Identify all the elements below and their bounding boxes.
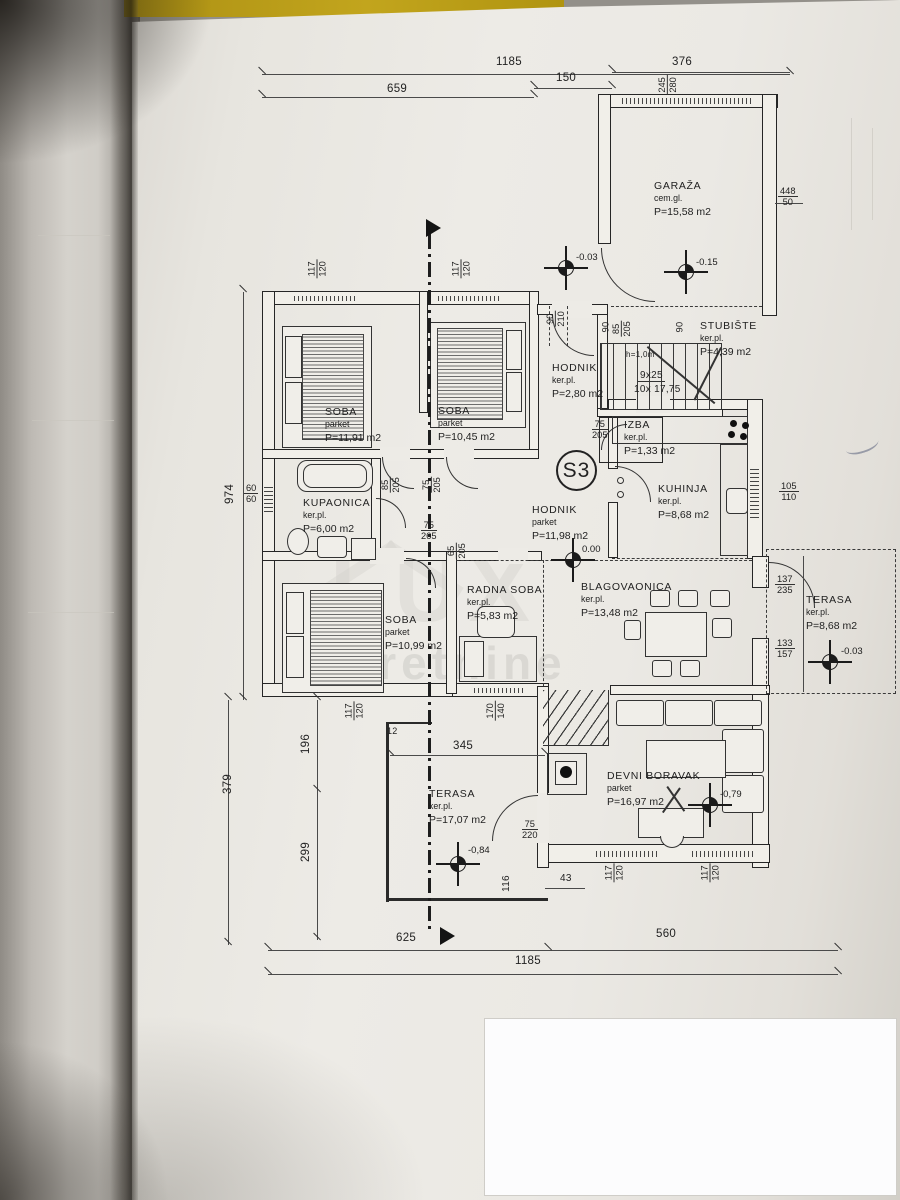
dim-door: 75220 bbox=[522, 819, 538, 841]
open-plan-divider bbox=[456, 560, 752, 561]
kitchen-sink-icon bbox=[726, 488, 748, 514]
dim-299: 299 bbox=[300, 842, 312, 862]
dim-line bbox=[317, 700, 318, 940]
dim-bath-window: 6060 bbox=[244, 483, 258, 505]
dim-door: 85205 bbox=[380, 477, 402, 493]
fixture-dot bbox=[617, 477, 624, 484]
room-label-stubiste: STUBIŠTEker.pl.P=4,39 m2 bbox=[700, 320, 757, 359]
room-label-kuhinja: KUHINJAker.pl.P=8,68 m2 bbox=[658, 483, 709, 522]
sofa-cushion bbox=[722, 729, 764, 773]
dim-line bbox=[262, 97, 534, 98]
dim-560: 560 bbox=[656, 928, 676, 940]
dim-1185-top: 1185 bbox=[496, 56, 522, 68]
dim-12: 12 bbox=[387, 726, 398, 736]
wall bbox=[446, 551, 457, 694]
page-shadow bbox=[132, 990, 462, 1200]
dim-line bbox=[268, 950, 838, 951]
dim-window: 117120 bbox=[451, 259, 473, 278]
pillow-icon bbox=[286, 636, 304, 678]
elevation-value: -0,84 bbox=[468, 845, 490, 856]
sofa-cushion bbox=[616, 700, 664, 726]
wall bbox=[608, 502, 618, 558]
elevation-value: 0.00 bbox=[582, 544, 601, 555]
dim-window: 117120 bbox=[700, 863, 722, 882]
chair-icon bbox=[680, 660, 700, 677]
room-label-terasa-right: TERASAker.pl.P=8,68 m2 bbox=[806, 594, 857, 633]
dim-345: 345 bbox=[453, 740, 473, 752]
dim-150: 150 bbox=[556, 72, 576, 84]
desk-drawer bbox=[464, 641, 484, 677]
window-hatch bbox=[474, 688, 524, 693]
open-plan-divider bbox=[543, 560, 544, 686]
dim-625: 625 bbox=[396, 932, 416, 944]
room-label-hodnik-1: HODNIKker.pl.P=2,80 m2 bbox=[552, 362, 603, 401]
blank-overlay-box bbox=[484, 1018, 897, 1196]
dim-line bbox=[390, 755, 545, 756]
garage-open-edge bbox=[611, 306, 762, 307]
elevation-value: -0.03 bbox=[841, 646, 863, 657]
room-label-hodnik-2: HODNIKparketP=11,98 m2 bbox=[532, 504, 588, 543]
section-bubble: S3 bbox=[556, 450, 597, 491]
dim-window: 117120 bbox=[307, 259, 329, 278]
dim-izba-door: 75205 bbox=[592, 419, 608, 441]
elevation-value: -0.15 bbox=[696, 257, 718, 268]
photo-corner-shadow bbox=[0, 0, 220, 170]
bleed-line bbox=[872, 128, 873, 220]
door-opening bbox=[498, 548, 528, 564]
window-hatch bbox=[264, 486, 273, 512]
dim-379: 379 bbox=[222, 774, 234, 794]
dim-line bbox=[534, 88, 612, 89]
dim-90: 90 bbox=[674, 322, 684, 333]
staircase-down-icon bbox=[543, 690, 609, 746]
bleed-line bbox=[851, 118, 852, 230]
stair-count-2: 10x 17,75 bbox=[634, 384, 681, 395]
sink-icon bbox=[317, 536, 347, 558]
chair-icon bbox=[678, 590, 698, 607]
sofa-cushion bbox=[714, 700, 762, 726]
room-label-radna-soba: RADNA SOBAker.pl.P=5,83 m2 bbox=[467, 584, 542, 623]
bleed-line bbox=[32, 420, 114, 421]
dim-line bbox=[262, 74, 790, 75]
chair-icon bbox=[710, 590, 730, 607]
dim-974: 974 bbox=[224, 484, 236, 504]
dim-659: 659 bbox=[387, 83, 407, 95]
bathtub-inner bbox=[303, 464, 367, 488]
floor-plan-photo: LUX nekretnine bbox=[0, 0, 900, 1200]
dim-door: 85205 bbox=[611, 321, 633, 337]
dim-376: 376 bbox=[672, 56, 692, 68]
dim-kitchen-window: 105110 bbox=[779, 481, 799, 503]
bleed-line bbox=[38, 235, 110, 236]
dim-terrace: 137235 bbox=[775, 574, 795, 596]
section-line bbox=[428, 234, 431, 930]
dim-line bbox=[545, 888, 585, 889]
hob-burner-icon bbox=[730, 420, 737, 427]
dim-43: 43 bbox=[560, 873, 572, 884]
dim-1185-bottom: 1185 bbox=[515, 955, 541, 967]
fixture-dot bbox=[617, 491, 624, 498]
elevation-value: -0,79 bbox=[720, 789, 742, 800]
dim-door: 75205 bbox=[421, 477, 443, 493]
window-hatch bbox=[294, 296, 356, 301]
dim-terrace: 133157 bbox=[775, 638, 795, 660]
door-opening bbox=[537, 793, 549, 843]
chair-icon bbox=[624, 620, 641, 640]
dim-window: 170140 bbox=[485, 701, 507, 721]
room-label-dnevni-boravak: DEVNI BORAVAKparketP=16,97 m2 bbox=[607, 770, 700, 809]
window-hatch bbox=[750, 466, 759, 518]
stair-height-note: h=1,0m bbox=[626, 350, 655, 359]
bed-mattress bbox=[310, 590, 382, 686]
washer-icon bbox=[351, 538, 376, 560]
dim-line bbox=[803, 556, 804, 692]
window-hatch bbox=[438, 296, 500, 301]
stair-count-1: 9x25 bbox=[638, 370, 665, 382]
dim-196: 196 bbox=[300, 734, 312, 754]
wall bbox=[610, 685, 770, 695]
section-marker-icon bbox=[440, 927, 455, 945]
dim-116: 116 bbox=[501, 875, 512, 892]
dim-line bbox=[612, 72, 790, 73]
pillow-icon bbox=[286, 592, 304, 634]
room-label-blagovaonica: BLAGOVAONICAker.pl.P=13,48 m2 bbox=[581, 581, 672, 620]
room-label-terasa-bottom: TERASAker.pl.P=17,07 m2 bbox=[429, 788, 486, 827]
room-label-kupaonica: KUPAONICAker.pl.P=6,00 m2 bbox=[303, 497, 370, 536]
room-label-soba-3: SOBAparketP=10,99 m2 bbox=[385, 614, 442, 653]
dim-line bbox=[268, 974, 838, 975]
room-label-izba: IZBAker.pl.P=1,33 m2 bbox=[624, 419, 675, 458]
dim-door: 90210 bbox=[545, 311, 567, 327]
section-marker-icon bbox=[426, 219, 441, 237]
sofa-cushion bbox=[665, 700, 713, 726]
photo-corner-shadow bbox=[0, 1040, 170, 1200]
room-label-soba-1: SOBAparketP=11,91 m2 bbox=[325, 406, 381, 445]
pillow-icon bbox=[506, 372, 522, 412]
chair-icon bbox=[712, 618, 732, 638]
wall bbox=[762, 94, 777, 316]
hob-burner-icon bbox=[740, 433, 747, 440]
terrace-edge bbox=[386, 898, 548, 901]
wall bbox=[598, 94, 611, 244]
elevation-value: -0.03 bbox=[576, 252, 598, 263]
bleed-line bbox=[28, 612, 114, 613]
dim-448-50: 44850 bbox=[778, 186, 798, 208]
pillow-icon bbox=[506, 330, 522, 370]
pillow-icon bbox=[285, 382, 302, 424]
window-hatch bbox=[596, 851, 660, 857]
chair-icon bbox=[652, 660, 672, 677]
terrace-edge bbox=[386, 722, 432, 724]
pillow-icon bbox=[285, 336, 302, 378]
dim-line bbox=[228, 700, 229, 945]
hob-burner-icon bbox=[728, 431, 735, 438]
dim-245-280: 245280 bbox=[657, 75, 679, 95]
room-label-soba-2: SOBAparketP=10,45 m2 bbox=[438, 405, 495, 444]
window-hatch bbox=[692, 851, 756, 857]
open-plan-divider bbox=[612, 558, 748, 559]
dim-door: 65205 bbox=[446, 543, 468, 559]
dim-window: 117120 bbox=[604, 863, 626, 882]
wall bbox=[529, 291, 539, 457]
dim-90: 90 bbox=[600, 322, 610, 333]
room-label-garaza: GARAŽAcem.gl.P=15,58 m2 bbox=[654, 180, 711, 219]
hob-burner-icon bbox=[742, 422, 749, 429]
window-hatch bbox=[622, 98, 754, 104]
fireplace-dot bbox=[560, 766, 572, 778]
wall bbox=[419, 291, 428, 413]
dim-window: 117120 bbox=[344, 701, 366, 720]
